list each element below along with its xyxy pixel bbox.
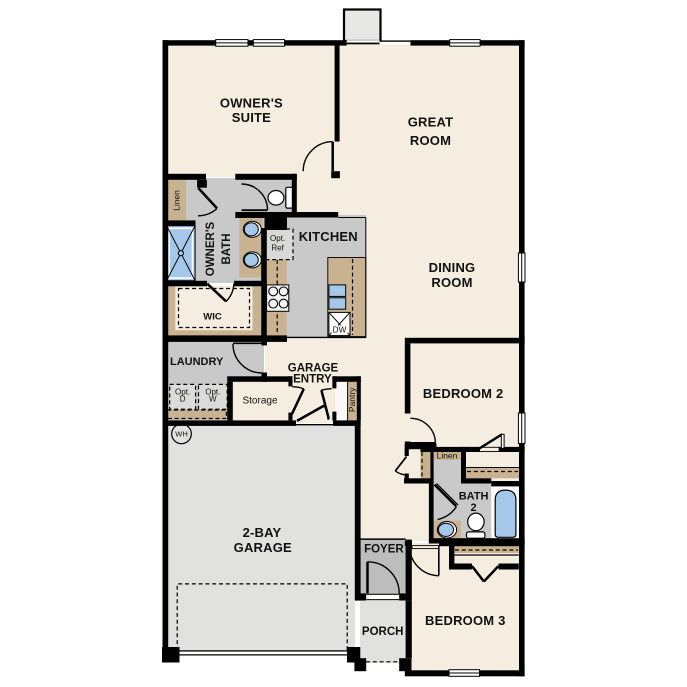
svg-text:ENTRY: ENTRY xyxy=(293,374,332,386)
svg-text:ROOM: ROOM xyxy=(431,275,472,290)
svg-text:FOYER: FOYER xyxy=(364,544,404,556)
svg-text:Linen: Linen xyxy=(437,451,458,461)
svg-text:BEDROOM 2: BEDROOM 2 xyxy=(423,386,504,401)
svg-text:DINING: DINING xyxy=(429,260,476,275)
svg-text:LAUNDRY: LAUNDRY xyxy=(170,356,224,368)
svg-text:Pantry: Pantry xyxy=(347,387,357,412)
svg-text:GARAGE: GARAGE xyxy=(288,362,339,374)
svg-text:SUITE: SUITE xyxy=(232,110,271,125)
svg-text:OWNER'S: OWNER'S xyxy=(205,221,217,276)
svg-text:BATH: BATH xyxy=(221,233,233,264)
svg-text:D: D xyxy=(180,394,186,403)
svg-text:2: 2 xyxy=(471,502,477,514)
svg-text:2-BAY: 2-BAY xyxy=(243,525,282,540)
svg-text:Storage: Storage xyxy=(242,395,277,406)
svg-text:WH: WH xyxy=(175,430,188,439)
svg-text:BATH: BATH xyxy=(459,491,489,503)
svg-text:Opt.: Opt. xyxy=(270,234,285,243)
svg-text:PORCH: PORCH xyxy=(362,626,404,638)
svg-text:GREAT: GREAT xyxy=(408,115,454,130)
svg-text:OWNER'S: OWNER'S xyxy=(220,96,283,111)
svg-text:ROOM: ROOM xyxy=(410,133,451,148)
svg-text:DW: DW xyxy=(333,326,347,335)
svg-text:W: W xyxy=(209,394,217,403)
svg-text:KITCHEN: KITCHEN xyxy=(299,229,358,244)
svg-text:GARAGE: GARAGE xyxy=(234,540,292,555)
svg-text:WIC: WIC xyxy=(203,311,222,322)
svg-text:BEDROOM 3: BEDROOM 3 xyxy=(425,613,506,628)
svg-text:Ref: Ref xyxy=(271,243,284,252)
svg-text:Linen: Linen xyxy=(171,190,181,211)
